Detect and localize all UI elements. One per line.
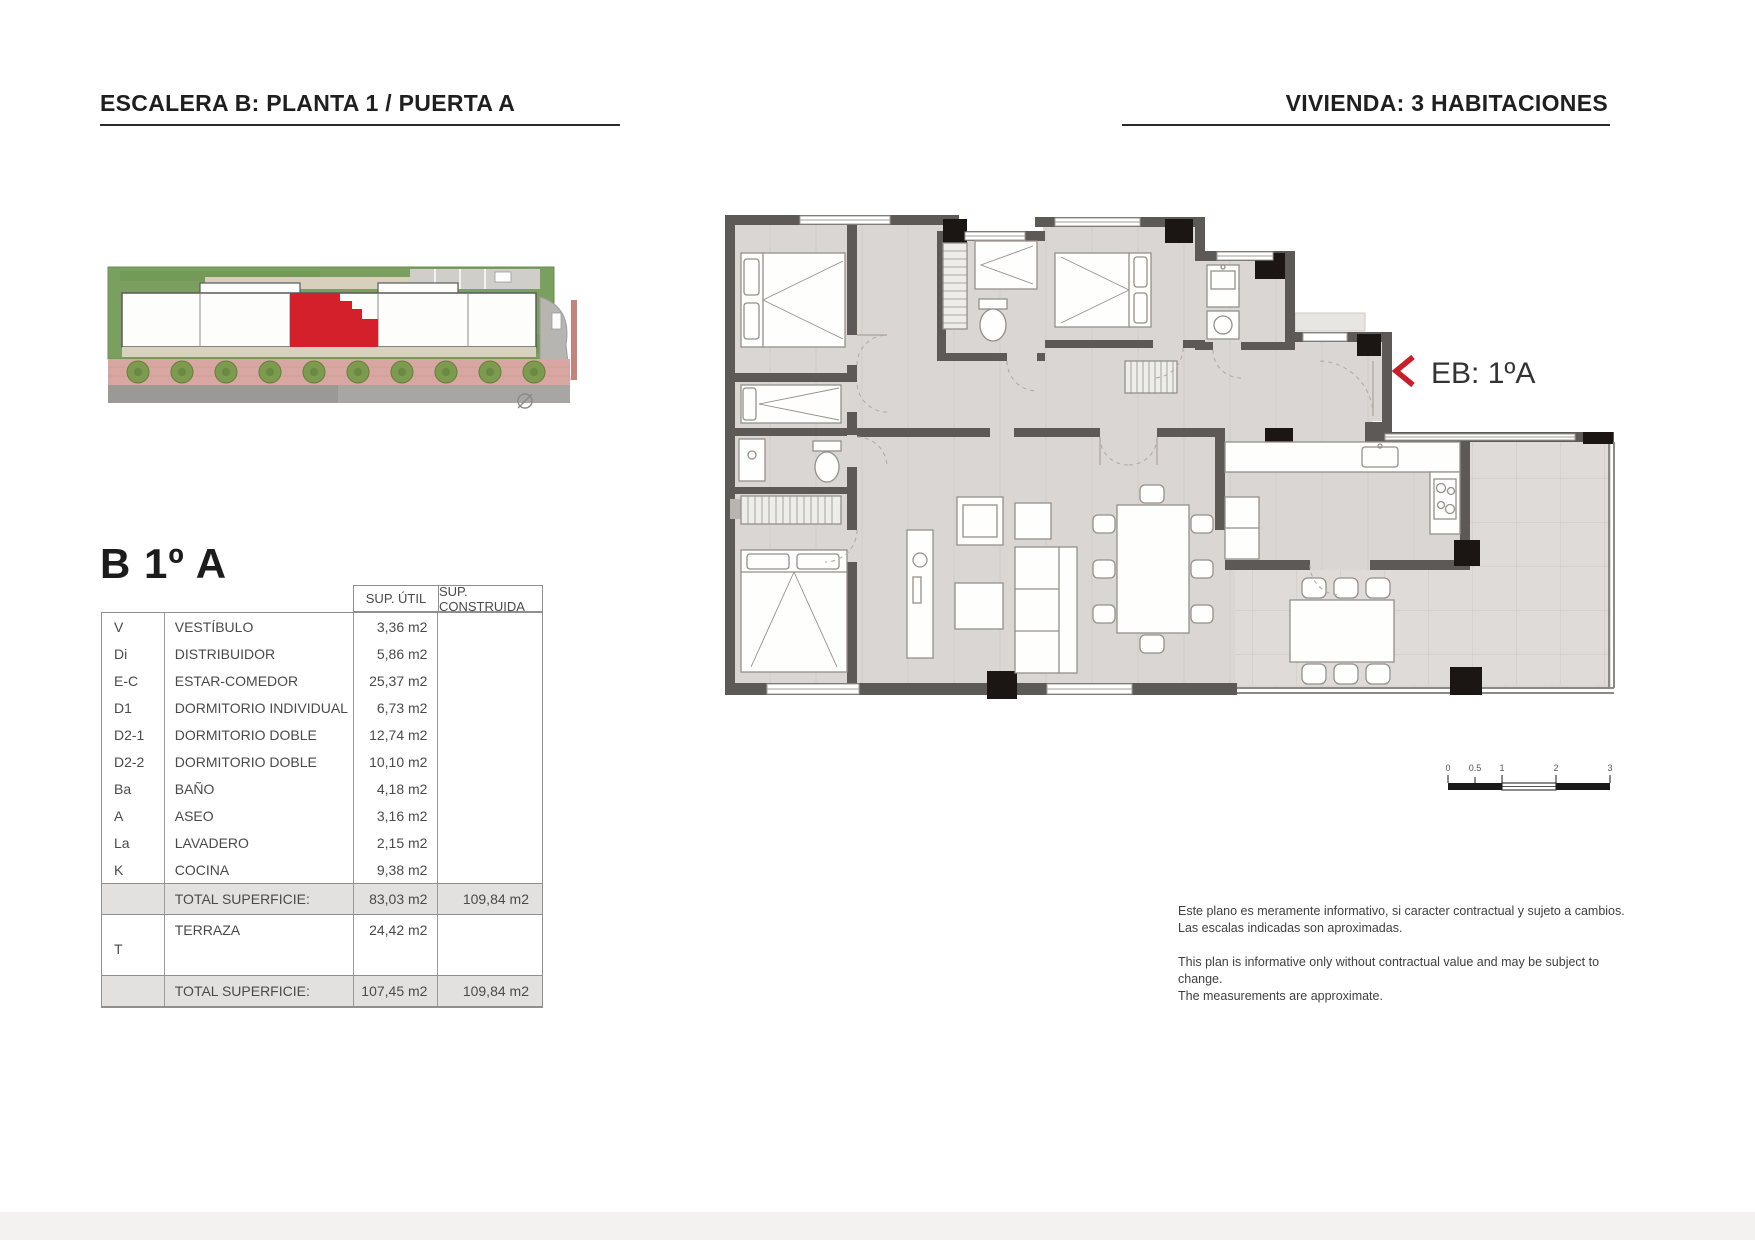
footer-strip — [0, 1212, 1755, 1240]
entrance-chevron-icon — [1396, 357, 1413, 385]
scale-label: 2 — [1553, 763, 1558, 773]
page-title-left: ESCALERA B: PLANTA 1 / PUERTA A — [100, 90, 515, 117]
table-row: Di DISTRIBUIDOR 5,86 m2 — [102, 640, 542, 667]
total-row-interior: TOTAL SUPERFICIE: 83,03 m2 109,84 m2 — [102, 883, 542, 915]
table-row: D2-2 DORMITORIO DOBLE 10,10 m2 — [102, 748, 542, 775]
wardrobe-hatched-1 — [730, 496, 841, 524]
page-title-right: VIVIENDA: 3 HABITACIONES — [1286, 90, 1608, 117]
col-header-sup-util: SUP. ÚTIL — [353, 585, 438, 612]
scale-label: 3 — [1607, 763, 1612, 773]
table-row: D1 DORMITORIO INDIVIDUAL 6,73 m2 — [102, 694, 542, 721]
scale-bar: 0 0.5 1 2 3 — [1445, 763, 1612, 790]
title-left-underline — [100, 124, 620, 126]
scale-label: 0 — [1445, 763, 1450, 773]
disclaimer-en: This plan is informative only without co… — [1178, 954, 1628, 1005]
table-row: E-C ESTAR-COMEDOR 25,37 m2 — [102, 667, 542, 694]
table-row-terrace: T TERRAZA 24,42 m2 — [102, 915, 542, 975]
site-plan-thumbnail — [100, 255, 580, 405]
scale-label: 1 — [1499, 763, 1504, 773]
bed-double-2 — [1055, 253, 1151, 327]
table-row: V VESTÍBULO 3,36 m2 — [102, 613, 542, 640]
entrance-label: EB: 1ºA — [1396, 357, 1535, 390]
surface-table: SUP. ÚTIL SUP. CONSTRUIDA V VESTÍBULO 3,… — [101, 585, 543, 1008]
table-row: Ba BAÑO 4,18 m2 — [102, 775, 542, 802]
floor-plan: EB: 1ºA 0 0.5 1 2 3 — [725, 215, 1625, 815]
entrance-landing — [1295, 313, 1365, 331]
table-row: La LAVADERO 2,15 m2 — [102, 829, 542, 856]
col-header-sup-construida: SUP. CONSTRUIDA — [438, 585, 543, 612]
terrace-table — [1290, 578, 1394, 684]
entrance-label-text: EB: 1ºA — [1431, 357, 1535, 390]
wardrobe-hatched-2 — [1125, 361, 1177, 393]
table-row: A ASEO 3,16 m2 — [102, 802, 542, 829]
bed-single — [741, 385, 841, 423]
surface-table-header: SUP. ÚTIL SUP. CONSTRUIDA — [101, 585, 543, 612]
disclaimer-es: Este plano es meramente informativo, si … — [1178, 903, 1628, 937]
bed-double-3 — [741, 550, 847, 672]
total-row-with-terrace: TOTAL SUPERFICIE: 107,45 m2 109,84 m2 — [102, 975, 542, 1007]
disclaimer: Este plano es meramente informativo, si … — [1178, 903, 1628, 1022]
scale-label: 0.5 — [1469, 763, 1482, 773]
unit-title: B 1º A — [100, 540, 227, 588]
table-row: K COCINA 9,38 m2 — [102, 856, 542, 883]
laundry-fixtures — [1207, 265, 1239, 339]
north-indicator-icon — [514, 390, 536, 412]
bed-double-1 — [741, 253, 845, 347]
table-row: D2-1 DORMITORIO DOBLE 12,74 m2 — [102, 721, 542, 748]
title-right-underline — [1122, 124, 1610, 126]
site-sidewalk-strip — [122, 347, 536, 357]
plan-sheet: ESCALERA B: PLANTA 1 / PUERTA A VIVIENDA… — [0, 0, 1755, 1240]
